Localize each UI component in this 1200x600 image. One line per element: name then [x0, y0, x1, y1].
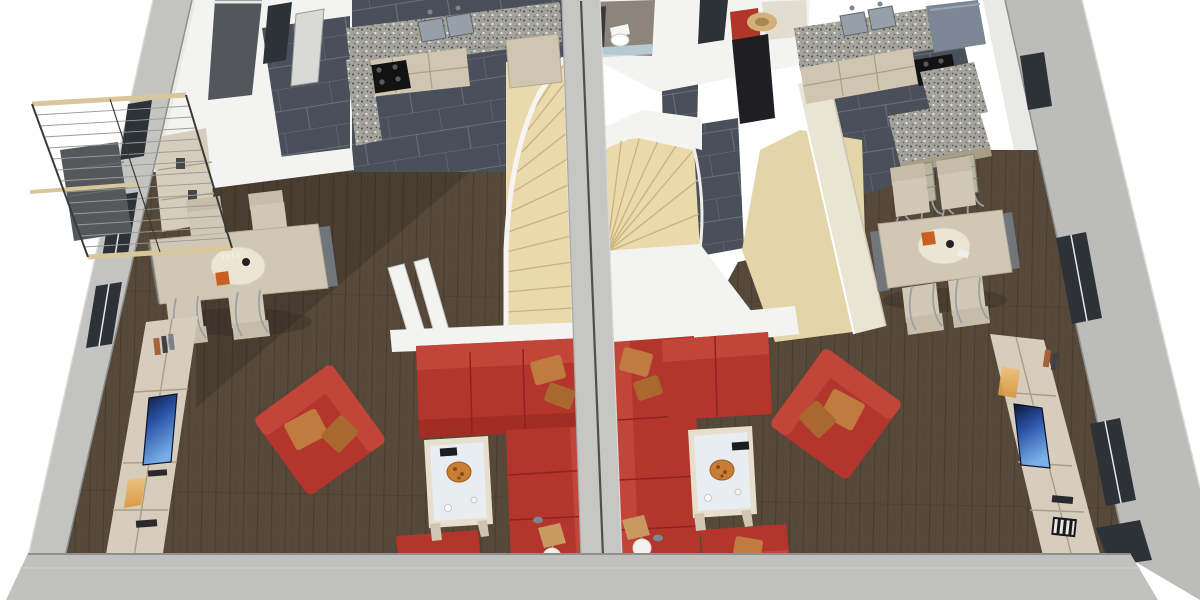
dark-coat: [732, 34, 775, 124]
tv-screen: [143, 394, 177, 465]
floorplan-render: [0, 0, 1200, 600]
floorplan-canvas: [0, 0, 1200, 600]
gift-box: [921, 231, 936, 246]
gift-box: [215, 271, 230, 286]
door-panel: [291, 9, 324, 86]
left-tall-cabinet: [506, 34, 562, 88]
right-staircase: [598, 136, 702, 252]
remote: [732, 441, 750, 450]
vase: [242, 258, 250, 266]
left-coffee-table: [424, 436, 493, 541]
vase: [946, 240, 954, 248]
doorway-dark: [698, 0, 728, 44]
remote: [440, 447, 458, 456]
coat-rack: [730, 8, 777, 124]
right-coffee-table: [688, 426, 757, 531]
striped-box: [1051, 517, 1077, 537]
